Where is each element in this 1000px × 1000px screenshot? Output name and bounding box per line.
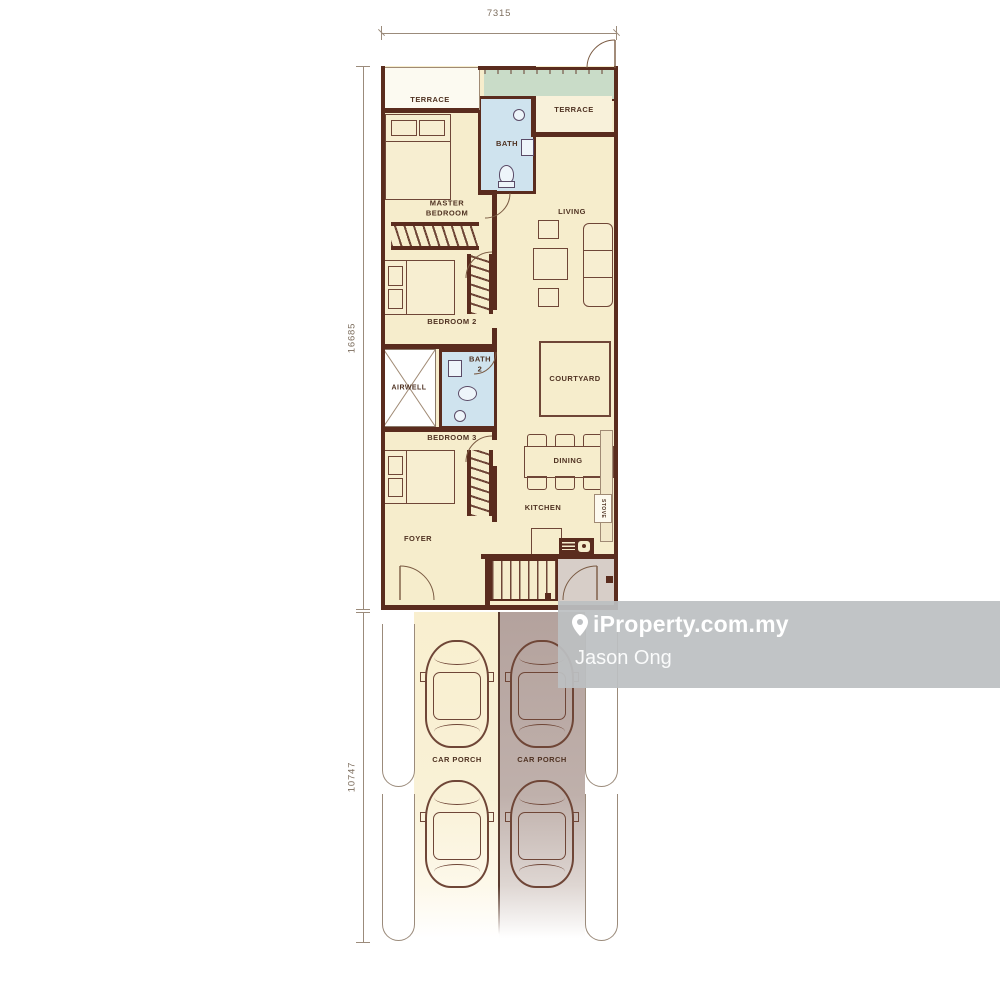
wall	[478, 190, 497, 195]
label-bedroom3: BEDROOM 3	[427, 433, 476, 443]
wall	[381, 66, 385, 610]
pillow	[419, 120, 445, 136]
pillow	[391, 120, 417, 136]
sink-icon	[448, 360, 462, 377]
wall	[536, 132, 614, 137]
wall	[492, 190, 497, 310]
location-pin-icon	[572, 614, 588, 636]
dimension-tick	[356, 66, 370, 67]
wardrobe	[391, 222, 479, 250]
label-foyer: FOYER	[404, 534, 432, 544]
watermark-brand-row: iProperty.com.my	[572, 611, 789, 638]
dimension-line-left-lower	[363, 612, 364, 943]
dimension-tick	[356, 609, 370, 610]
label-bath-2: BATH 2	[469, 354, 491, 374]
label-bath-1: BATH	[496, 139, 518, 149]
label-terrace-left: TERRACE	[410, 95, 449, 105]
pillow	[388, 478, 403, 497]
sink-icon	[521, 139, 534, 156]
wall	[492, 432, 497, 440]
blanket-line	[406, 451, 407, 503]
label-dining: DINING	[554, 456, 583, 466]
wall	[381, 427, 497, 432]
dimension-line-left-upper	[363, 66, 364, 610]
side-table	[538, 220, 559, 239]
label-courtyard: COURTYARD	[549, 374, 600, 384]
wardrobe	[467, 254, 493, 314]
toilet-icon	[458, 386, 477, 401]
label-car-porch-right: CAR PORCH	[517, 755, 566, 765]
bed-bedroom2	[383, 260, 455, 315]
room-terrace-right	[536, 96, 612, 134]
wardrobe	[467, 450, 493, 516]
stove-unit: STOVE	[594, 494, 612, 523]
toilet-tank	[498, 181, 515, 188]
floor-plan-canvas: 7315 16685 10747 TERRACE TERRACE	[0, 0, 1000, 1000]
sofa-cushion-line	[584, 277, 612, 278]
canopy-hatch	[484, 70, 614, 74]
watermark-overlay: iProperty.com.my Jason Ong	[558, 601, 1000, 688]
door-stop	[606, 576, 613, 583]
blanket-line	[386, 141, 450, 142]
kitchen-counter	[600, 430, 613, 542]
sink-drain	[582, 544, 586, 548]
door-stop	[545, 593, 551, 599]
wall	[531, 96, 536, 137]
car-icon	[510, 780, 574, 888]
coffee-table	[533, 248, 568, 280]
car-icon	[425, 640, 489, 748]
curb-lane	[382, 624, 415, 787]
kitchen-sink-unit	[559, 538, 594, 555]
car-icon	[425, 780, 489, 888]
dimension-left-upper: 16685	[347, 323, 358, 353]
bed-bedroom3	[383, 450, 455, 504]
wall	[614, 66, 618, 610]
dimension-tick	[356, 612, 370, 613]
wall	[381, 344, 497, 349]
curb-lane	[382, 794, 415, 941]
label-living: LIVING	[558, 207, 586, 217]
porch-divider-line	[498, 612, 500, 934]
watermark-agent-name: Jason Ong	[575, 647, 672, 670]
kitchen-island	[531, 528, 562, 556]
label-bedroom2: BEDROOM 2	[427, 317, 476, 327]
floor-plan-unit: TERRACE TERRACE BATH MASTER BEDROOM LIVI…	[381, 66, 618, 610]
dimension-top-width: 7315	[459, 8, 539, 19]
wall	[381, 108, 479, 113]
dining-chair	[527, 476, 547, 490]
counter-lines	[562, 542, 575, 551]
shower-icon	[454, 410, 466, 422]
pillow	[388, 266, 403, 286]
dimension-left-lower: 10747	[347, 762, 358, 792]
watermark-brand-text: iProperty.com.my	[593, 611, 789, 638]
label-kitchen: KITCHEN	[525, 503, 561, 513]
side-table	[538, 288, 559, 307]
label-master-bedroom: MASTER BEDROOM	[426, 198, 468, 218]
curb-lane	[585, 794, 618, 941]
pillow	[388, 289, 403, 309]
wall	[492, 466, 497, 522]
label-airwell: AIRWELL	[392, 383, 427, 392]
label-car-porch-left: CAR PORCH	[432, 755, 481, 765]
wall	[478, 66, 536, 70]
label-stove: STOVE	[600, 499, 606, 518]
pillow	[388, 456, 403, 475]
wall	[492, 328, 497, 344]
dimension-line-top	[381, 33, 617, 34]
sofa-cushion-line	[584, 250, 612, 251]
dining-chair	[555, 476, 575, 490]
wall	[485, 559, 490, 605]
shower-icon	[513, 109, 525, 121]
sofa	[583, 223, 613, 307]
bed-master	[385, 114, 451, 200]
dimension-tick	[356, 942, 370, 943]
blanket-line	[406, 261, 407, 314]
label-terrace-right: TERRACE	[554, 105, 593, 115]
wall	[481, 554, 615, 559]
